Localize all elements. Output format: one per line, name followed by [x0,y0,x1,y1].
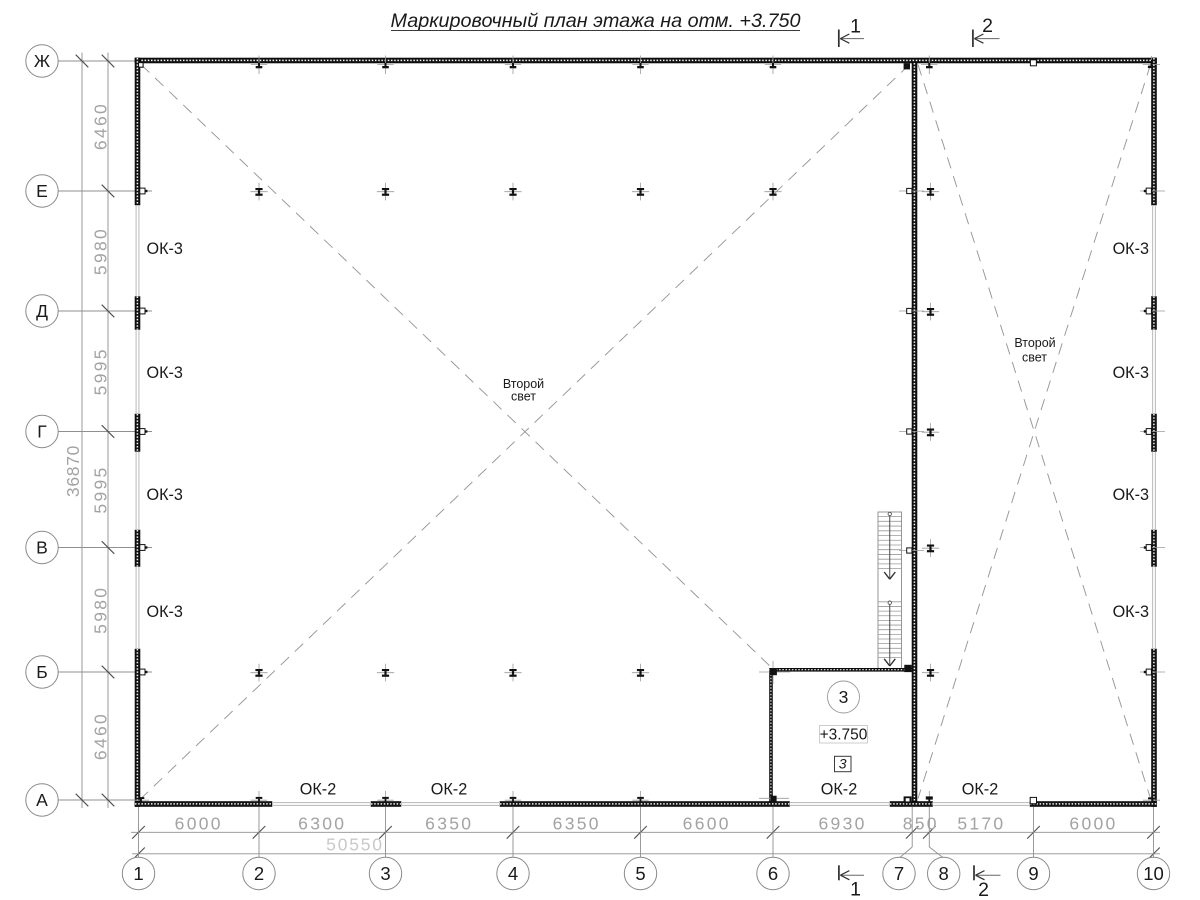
svg-text:ОК-3: ОК-3 [1113,240,1149,258]
svg-text:1: 1 [850,879,861,900]
svg-text:ОК-3: ОК-3 [1113,486,1149,504]
svg-text:1: 1 [133,863,143,884]
svg-text:+3.750: +3.750 [820,726,868,743]
svg-text:Второй: Второй [1014,336,1055,350]
svg-text:6930: 6930 [819,814,867,834]
svg-text:5980: 5980 [91,227,111,275]
svg-text:36870: 36870 [63,445,83,497]
svg-text:ОК-3: ОК-3 [147,603,183,621]
svg-text:6: 6 [768,863,778,884]
svg-text:ОК-3: ОК-3 [147,240,183,258]
svg-text:5170: 5170 [957,814,1005,834]
svg-text:2: 2 [982,15,993,37]
svg-text:6350: 6350 [425,814,473,834]
svg-text:5980: 5980 [91,586,111,634]
svg-text:ОК-3: ОК-3 [1113,364,1149,382]
svg-text:Д: Д [36,301,48,321]
svg-text:6460: 6460 [91,712,111,760]
svg-text:свет: свет [1022,351,1047,365]
svg-text:6300: 6300 [298,814,346,834]
svg-text:10: 10 [1143,863,1164,884]
svg-text:ОК-2: ОК-2 [821,781,857,799]
svg-text:Б: Б [36,662,47,682]
svg-text:7: 7 [894,863,904,884]
svg-text:ОК-2: ОК-2 [962,781,998,799]
svg-text:6350: 6350 [553,814,601,834]
svg-text:6460: 6460 [91,102,111,150]
svg-text:3: 3 [839,755,847,771]
svg-text:6000: 6000 [175,814,223,834]
svg-text:Маркировочный план этажа на от: Маркировочный план этажа на отм. +3.750 [391,10,801,32]
svg-text:4: 4 [508,863,518,884]
svg-text:ОК-3: ОК-3 [147,364,183,382]
svg-text:Г: Г [37,422,47,442]
svg-text:1: 1 [850,16,861,38]
svg-text:В: В [36,538,48,558]
svg-text:8: 8 [939,863,949,884]
svg-text:А: А [36,790,48,810]
svg-text:2: 2 [254,863,264,884]
svg-text:9: 9 [1028,863,1038,884]
svg-text:850: 850 [903,814,939,834]
svg-text:свет: свет [511,390,536,404]
svg-text:5: 5 [635,863,645,884]
svg-text:ОК-2: ОК-2 [431,781,467,799]
svg-text:5995: 5995 [91,347,111,395]
svg-text:6000: 6000 [1069,814,1117,834]
svg-text:Е: Е [36,181,48,201]
svg-text:3: 3 [380,863,390,884]
svg-text:6600: 6600 [683,814,731,834]
svg-text:ОК-2: ОК-2 [300,781,336,799]
svg-text:5995: 5995 [91,465,111,513]
svg-text:Ж: Ж [34,51,50,71]
svg-text:ОК-3: ОК-3 [1113,603,1149,621]
svg-text:50550: 50550 [326,835,384,855]
svg-text:ОК-3: ОК-3 [147,486,183,504]
svg-text:3: 3 [839,687,849,707]
svg-text:2: 2 [978,879,989,900]
